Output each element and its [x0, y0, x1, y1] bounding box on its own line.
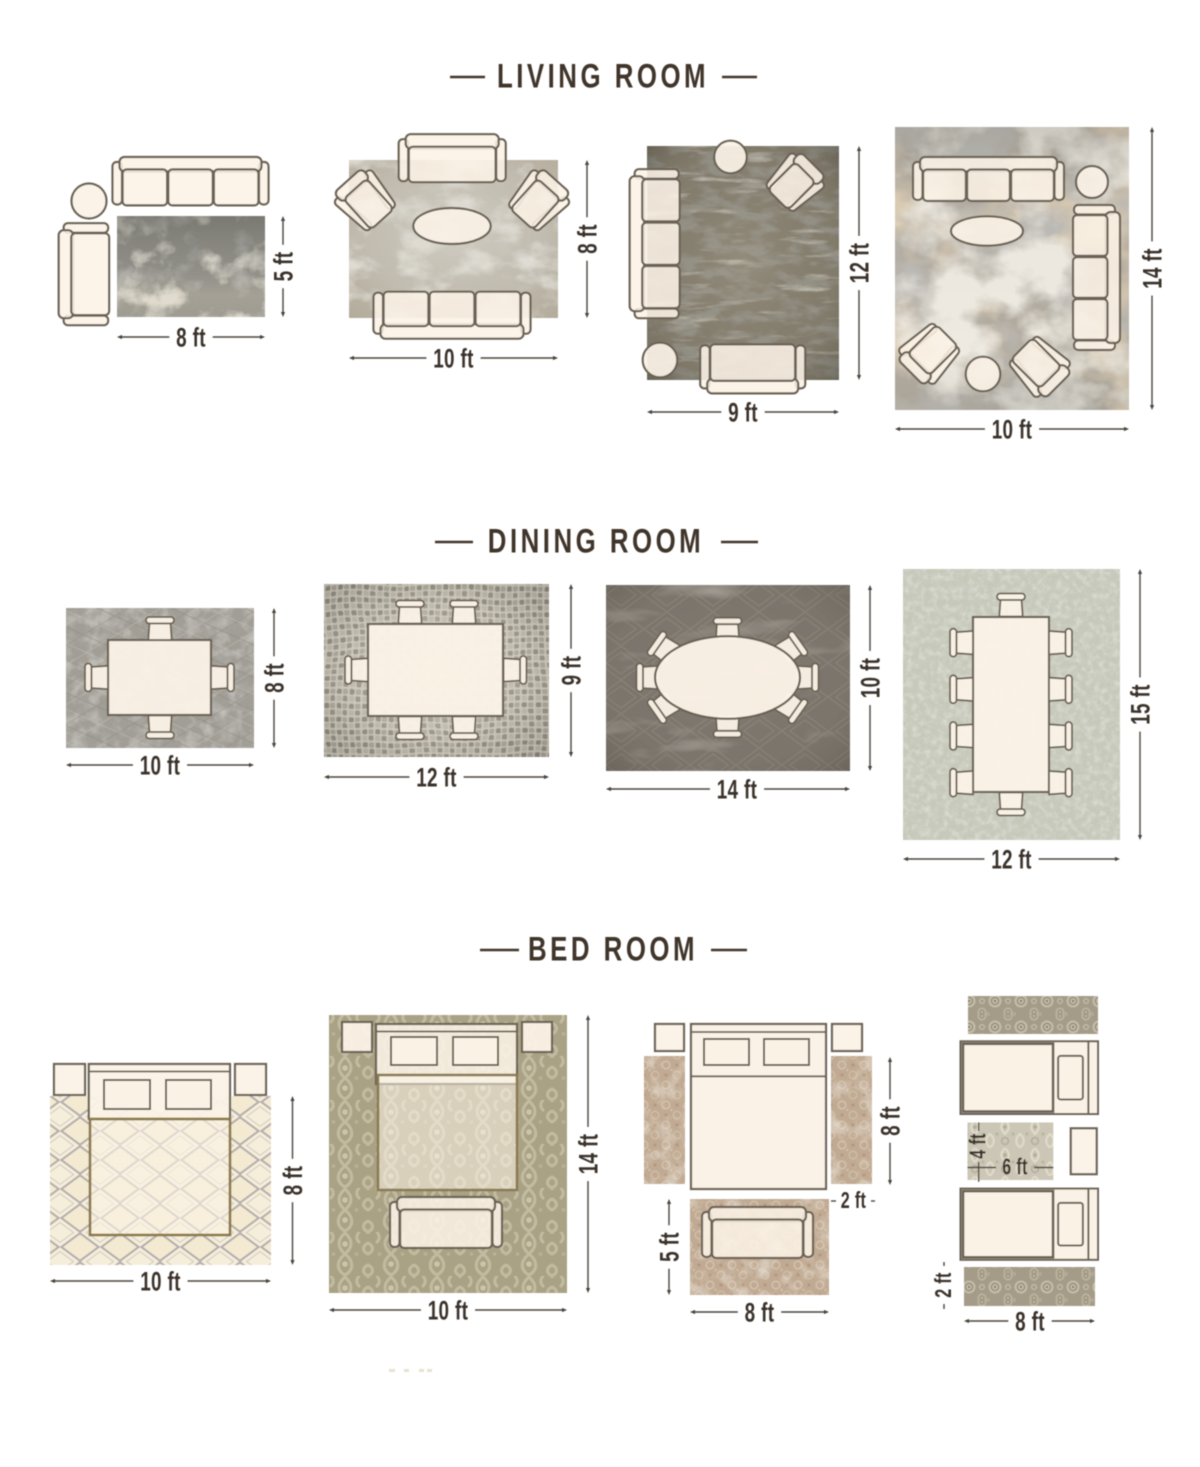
svg-text:10 ft: 10 ft	[855, 658, 885, 699]
svg-text:5 ft: 5 ft	[654, 1232, 684, 1262]
svg-text:6 ft: 6 ft	[1002, 1155, 1028, 1180]
svg-text:10 ft: 10 ft	[428, 1295, 469, 1325]
svg-text:14 ft: 14 ft	[717, 774, 758, 804]
svg-text:LIVING ROOM: LIVING ROOM	[497, 58, 709, 95]
svg-text:8 ft: 8 ft	[176, 322, 206, 352]
svg-text:2 ft: 2 ft	[841, 1188, 867, 1213]
svg-text:12 ft: 12 ft	[991, 844, 1032, 874]
svg-text:9 ft: 9 ft	[728, 397, 758, 427]
svg-text:5 ft: 5 ft	[268, 252, 298, 282]
svg-text:DINING ROOM: DINING ROOM	[488, 523, 704, 560]
svg-text:14 ft: 14 ft	[573, 1134, 603, 1175]
svg-text:2 ft: 2 ft	[931, 1272, 956, 1298]
svg-text:8 ft: 8 ft	[259, 663, 289, 693]
svg-text:9 ft: 9 ft	[556, 656, 586, 686]
svg-text:10 ft: 10 ft	[140, 750, 181, 780]
svg-text:8 ft: 8 ft	[875, 1106, 905, 1136]
svg-text:8 ft: 8 ft	[1015, 1306, 1045, 1336]
svg-text:12 ft: 12 ft	[416, 762, 457, 792]
svg-text:14 ft: 14 ft	[1137, 248, 1167, 289]
svg-text:8 ft: 8 ft	[745, 1297, 775, 1327]
svg-text:4 ft: 4 ft	[966, 1133, 991, 1159]
svg-text:8 ft: 8 ft	[277, 1166, 307, 1196]
svg-text:10 ft: 10 ft	[140, 1266, 181, 1296]
svg-text:10 ft: 10 ft	[992, 414, 1033, 444]
svg-text:BED ROOM: BED ROOM	[528, 931, 698, 968]
svg-text:12 ft: 12 ft	[844, 243, 874, 284]
svg-text:15 ft: 15 ft	[1125, 684, 1155, 725]
svg-text:8 ft: 8 ft	[572, 224, 602, 254]
svg-text:10 ft: 10 ft	[433, 343, 474, 373]
